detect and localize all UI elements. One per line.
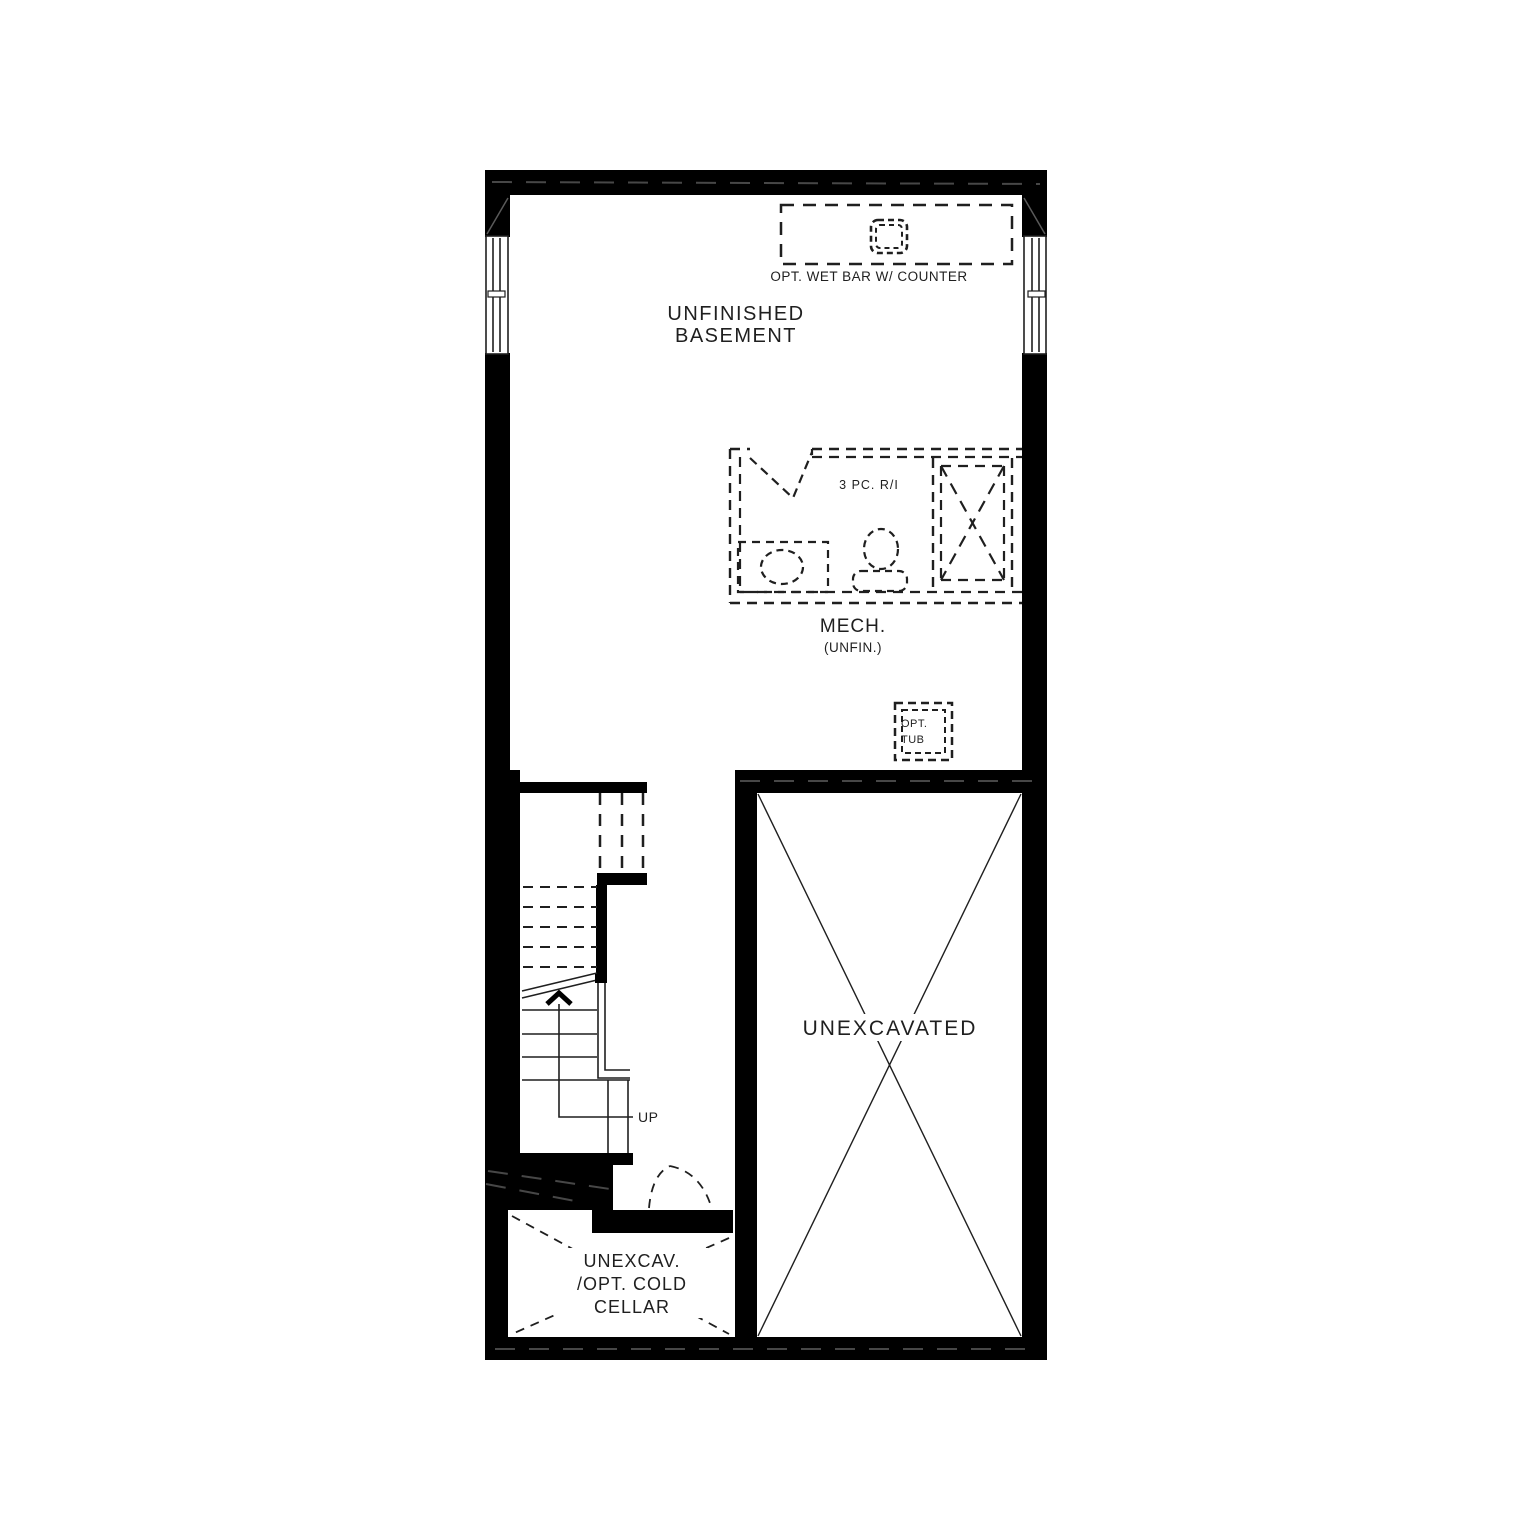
window-right: [1024, 236, 1046, 354]
wall-stair-top: [485, 782, 647, 793]
window-right-mullion: [1028, 291, 1045, 297]
handrail-inner: [605, 983, 630, 1070]
floor-plan-canvas: OPT. WET BAR W/ COUNTER UNFINISHED BASEM…: [0, 0, 1536, 1536]
bath-rough-in: [730, 449, 1022, 603]
toilet-icon: [853, 529, 907, 591]
up-label: UP: [638, 1109, 658, 1125]
wet-bar-label: OPT. WET BAR W/ COUNTER: [770, 269, 967, 284]
window-left-mullion: [488, 291, 505, 297]
basement-label-line1: UNFINISHED: [667, 303, 804, 325]
mech-label-line1: MECH.: [820, 616, 886, 637]
basement-label-line2: BASEMENT: [675, 325, 797, 347]
bath-door-swing: [750, 452, 812, 498]
handrail-outer: [598, 983, 630, 1078]
cellar-label-line1: UNEXCAV.: [583, 1251, 680, 1271]
unexcavated-label: UNEXCAVATED: [803, 1017, 978, 1040]
opt-tub-label-line2: TUB: [901, 734, 925, 746]
shower-icon: [933, 458, 1012, 588]
cellar-label-line2: /OPT. COLD: [577, 1274, 687, 1294]
wall-unexcavated-left: [735, 793, 757, 1360]
cellar-door-swing: [649, 1166, 711, 1208]
handrail-cap: [595, 974, 607, 983]
walls: [485, 170, 1047, 1360]
wet-bar-outline: [781, 205, 1012, 264]
wet-bar-sink-inner: [876, 225, 902, 248]
wall-left-lower: [485, 770, 520, 1165]
window-left: [486, 236, 508, 354]
wall-stair-bottom: [520, 1153, 633, 1165]
unexcavated-area: [758, 794, 1021, 1336]
wall-stair-mid-bar: [597, 873, 647, 885]
bath-label: 3 PC. R/I: [839, 478, 899, 492]
wall-stair-vertical: [596, 885, 607, 983]
floor-plan-page: OPT. WET BAR W/ COUNTER UNFINISHED BASEM…: [0, 0, 1536, 1536]
cellar-label-line3: CELLAR: [594, 1297, 670, 1317]
laundry-tub-icon: [738, 542, 828, 592]
mech-label-line2: (UNFIN.): [824, 640, 882, 655]
wall-right: [1022, 353, 1047, 1360]
wall-cellar-top: [592, 1210, 733, 1233]
stairs: [522, 793, 643, 1153]
wall-left-mid: [485, 353, 510, 770]
stair-up-arrow: [547, 993, 571, 1004]
stair-direction-line: [559, 1004, 633, 1117]
opt-tub-label-line1: OPT.: [901, 718, 927, 730]
opt-tub-outline: [895, 703, 952, 760]
